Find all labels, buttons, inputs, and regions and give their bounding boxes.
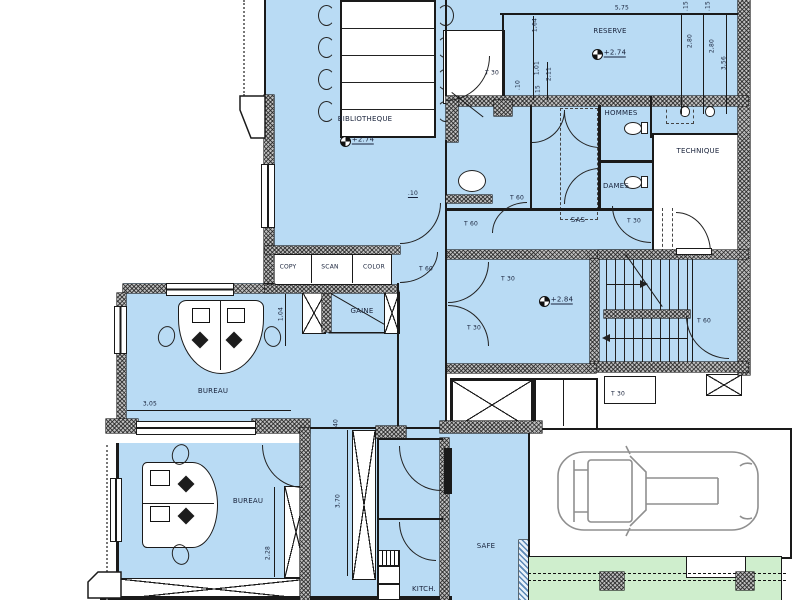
wall-line — [377, 518, 443, 520]
monitor — [192, 308, 210, 323]
dimension-label: 2,11 — [546, 67, 553, 81]
dotted-boundary — [243, 0, 245, 96]
wall — [440, 421, 542, 433]
door-tag: T 30 — [611, 391, 625, 398]
dimension-label: 3,56 — [721, 56, 728, 70]
dimension-label: 5,75 — [615, 5, 629, 12]
room-label-kitchen: KITCH. — [412, 585, 436, 593]
wall — [590, 259, 599, 370]
wall-line — [650, 96, 652, 138]
sill-shape — [86, 570, 124, 600]
dim-line — [127, 410, 291, 411]
dim-line — [681, 14, 682, 114]
floor-plan: +2.74 +2.74 +2.84 BIBLIOTHEQUE RESERVE H… — [0, 0, 800, 600]
dimension-label: .40 — [333, 419, 340, 429]
wall — [376, 426, 406, 438]
window — [114, 306, 127, 354]
wall-line — [377, 438, 443, 440]
room-label-dames: DAMES — [603, 182, 629, 190]
monitor — [150, 506, 170, 522]
appliance — [378, 550, 400, 566]
door-tag: T 30 — [501, 276, 515, 283]
toilet — [624, 122, 642, 135]
wall-line — [598, 160, 652, 163]
elevation-marker-icon — [592, 49, 603, 60]
door-tag: T 60 — [510, 195, 524, 202]
door-tag: T 30 — [485, 70, 499, 77]
chair — [318, 37, 335, 58]
wall-line — [502, 14, 504, 99]
appliance — [378, 584, 400, 600]
door-tag: T 60 — [464, 221, 478, 228]
window — [110, 478, 122, 542]
dimension-label: .10 — [408, 190, 418, 198]
counter-divider — [352, 254, 353, 283]
dimension-label: .15 — [705, 1, 712, 11]
counter-label-copy: COPY — [280, 264, 297, 271]
wall-line — [445, 370, 447, 428]
wall — [598, 250, 748, 259]
wall — [446, 96, 458, 142]
dimension-label: .10 — [515, 80, 522, 90]
monitor — [150, 470, 170, 486]
door-tag: T 60 — [419, 266, 433, 273]
desk-divider — [142, 503, 214, 504]
dimension-label: .15 — [683, 1, 690, 11]
elevation-label: +2.74 — [604, 49, 626, 58]
dashed-line — [662, 208, 663, 252]
toilet-tank — [641, 176, 648, 188]
arrow-left-icon — [602, 334, 610, 342]
dimension-label: 2,80 — [709, 39, 716, 53]
room-label-reserve: RESERVE — [593, 27, 626, 35]
dimension-label: 2,28 — [265, 546, 272, 560]
dimension-label: 1,01 — [534, 61, 541, 75]
overhead-dashed-outline — [666, 104, 694, 124]
wall — [322, 292, 331, 332]
chair — [318, 101, 335, 122]
wall — [590, 362, 748, 372]
stair-arrow-line — [610, 338, 688, 339]
door-tag: T 60 — [697, 318, 711, 325]
elevation-marker-icon — [539, 296, 550, 307]
wall — [738, 0, 750, 375]
insulation-band — [519, 540, 528, 600]
appliance — [378, 566, 400, 584]
dimension-label: 3,70 — [335, 494, 342, 508]
wall-line — [264, 0, 266, 96]
wall-line — [397, 283, 399, 428]
car-top-view — [530, 430, 786, 553]
stair-treads — [606, 318, 692, 362]
column — [600, 572, 624, 590]
chair — [318, 5, 335, 26]
column — [736, 572, 754, 590]
window — [261, 164, 275, 228]
stair-arrow-line — [606, 284, 640, 285]
door-tag: T 30 — [467, 325, 481, 332]
counter-divider — [311, 254, 312, 283]
door-leaf — [676, 248, 712, 255]
room-label-bibliotheque: BIBLIOTHEQUE — [338, 115, 393, 123]
dashed-line — [672, 208, 673, 252]
counter-label-color: COLOR — [363, 264, 385, 271]
elevation-label: +2.84 — [551, 296, 573, 305]
window — [166, 283, 234, 296]
dim-line — [347, 430, 348, 576]
dimension-label: 3,05 — [143, 401, 157, 408]
counter-label-scan: SCAN — [321, 264, 338, 271]
dimension-label: .15 — [535, 85, 542, 95]
wall — [494, 100, 512, 116]
window — [136, 421, 256, 435]
dimension-label: 1,64 — [532, 18, 539, 32]
room-label-safe: SAFE — [477, 542, 496, 550]
room-label-sas: SAS — [571, 216, 585, 224]
dimension-label: 2,80 — [687, 34, 694, 48]
room-label-gaine: GAINE — [351, 307, 374, 315]
washbasin — [458, 170, 486, 192]
elevation-label: +2.74 — [352, 136, 374, 145]
duct-box — [706, 374, 742, 396]
room-label-bureau-2: BUREAU — [233, 497, 263, 505]
garage — [528, 428, 792, 559]
desk-divider — [220, 300, 221, 370]
safe-door — [444, 448, 452, 494]
toilet-tank — [641, 122, 648, 134]
tall-shaft — [352, 430, 376, 580]
stair-landing-wall — [604, 310, 690, 318]
wall — [446, 364, 596, 373]
wall — [265, 246, 400, 254]
wall-line — [500, 13, 740, 15]
room-safe — [446, 428, 528, 600]
dimension-label: 1,04 — [278, 307, 285, 321]
urinal — [705, 106, 715, 117]
stair-edge — [692, 259, 693, 362]
room-label-bureau-1: BUREAU — [198, 387, 228, 395]
dim-line — [274, 487, 275, 577]
sill-shape — [238, 94, 268, 140]
room-label-technique: TECHNIQUE — [676, 147, 719, 155]
shaft-box — [534, 378, 598, 430]
wall — [446, 195, 492, 203]
chair — [318, 69, 335, 90]
monitor — [227, 308, 245, 323]
wall — [106, 419, 138, 433]
dim-line — [285, 294, 286, 346]
dim-line — [703, 14, 704, 114]
elevation-marker-icon — [340, 136, 351, 147]
room-label-hommes: HOMMES — [605, 109, 638, 117]
door-tag: T 30 — [627, 218, 641, 225]
shaft-divider — [563, 378, 564, 426]
wall-line — [445, 246, 447, 370]
wall — [265, 285, 398, 293]
